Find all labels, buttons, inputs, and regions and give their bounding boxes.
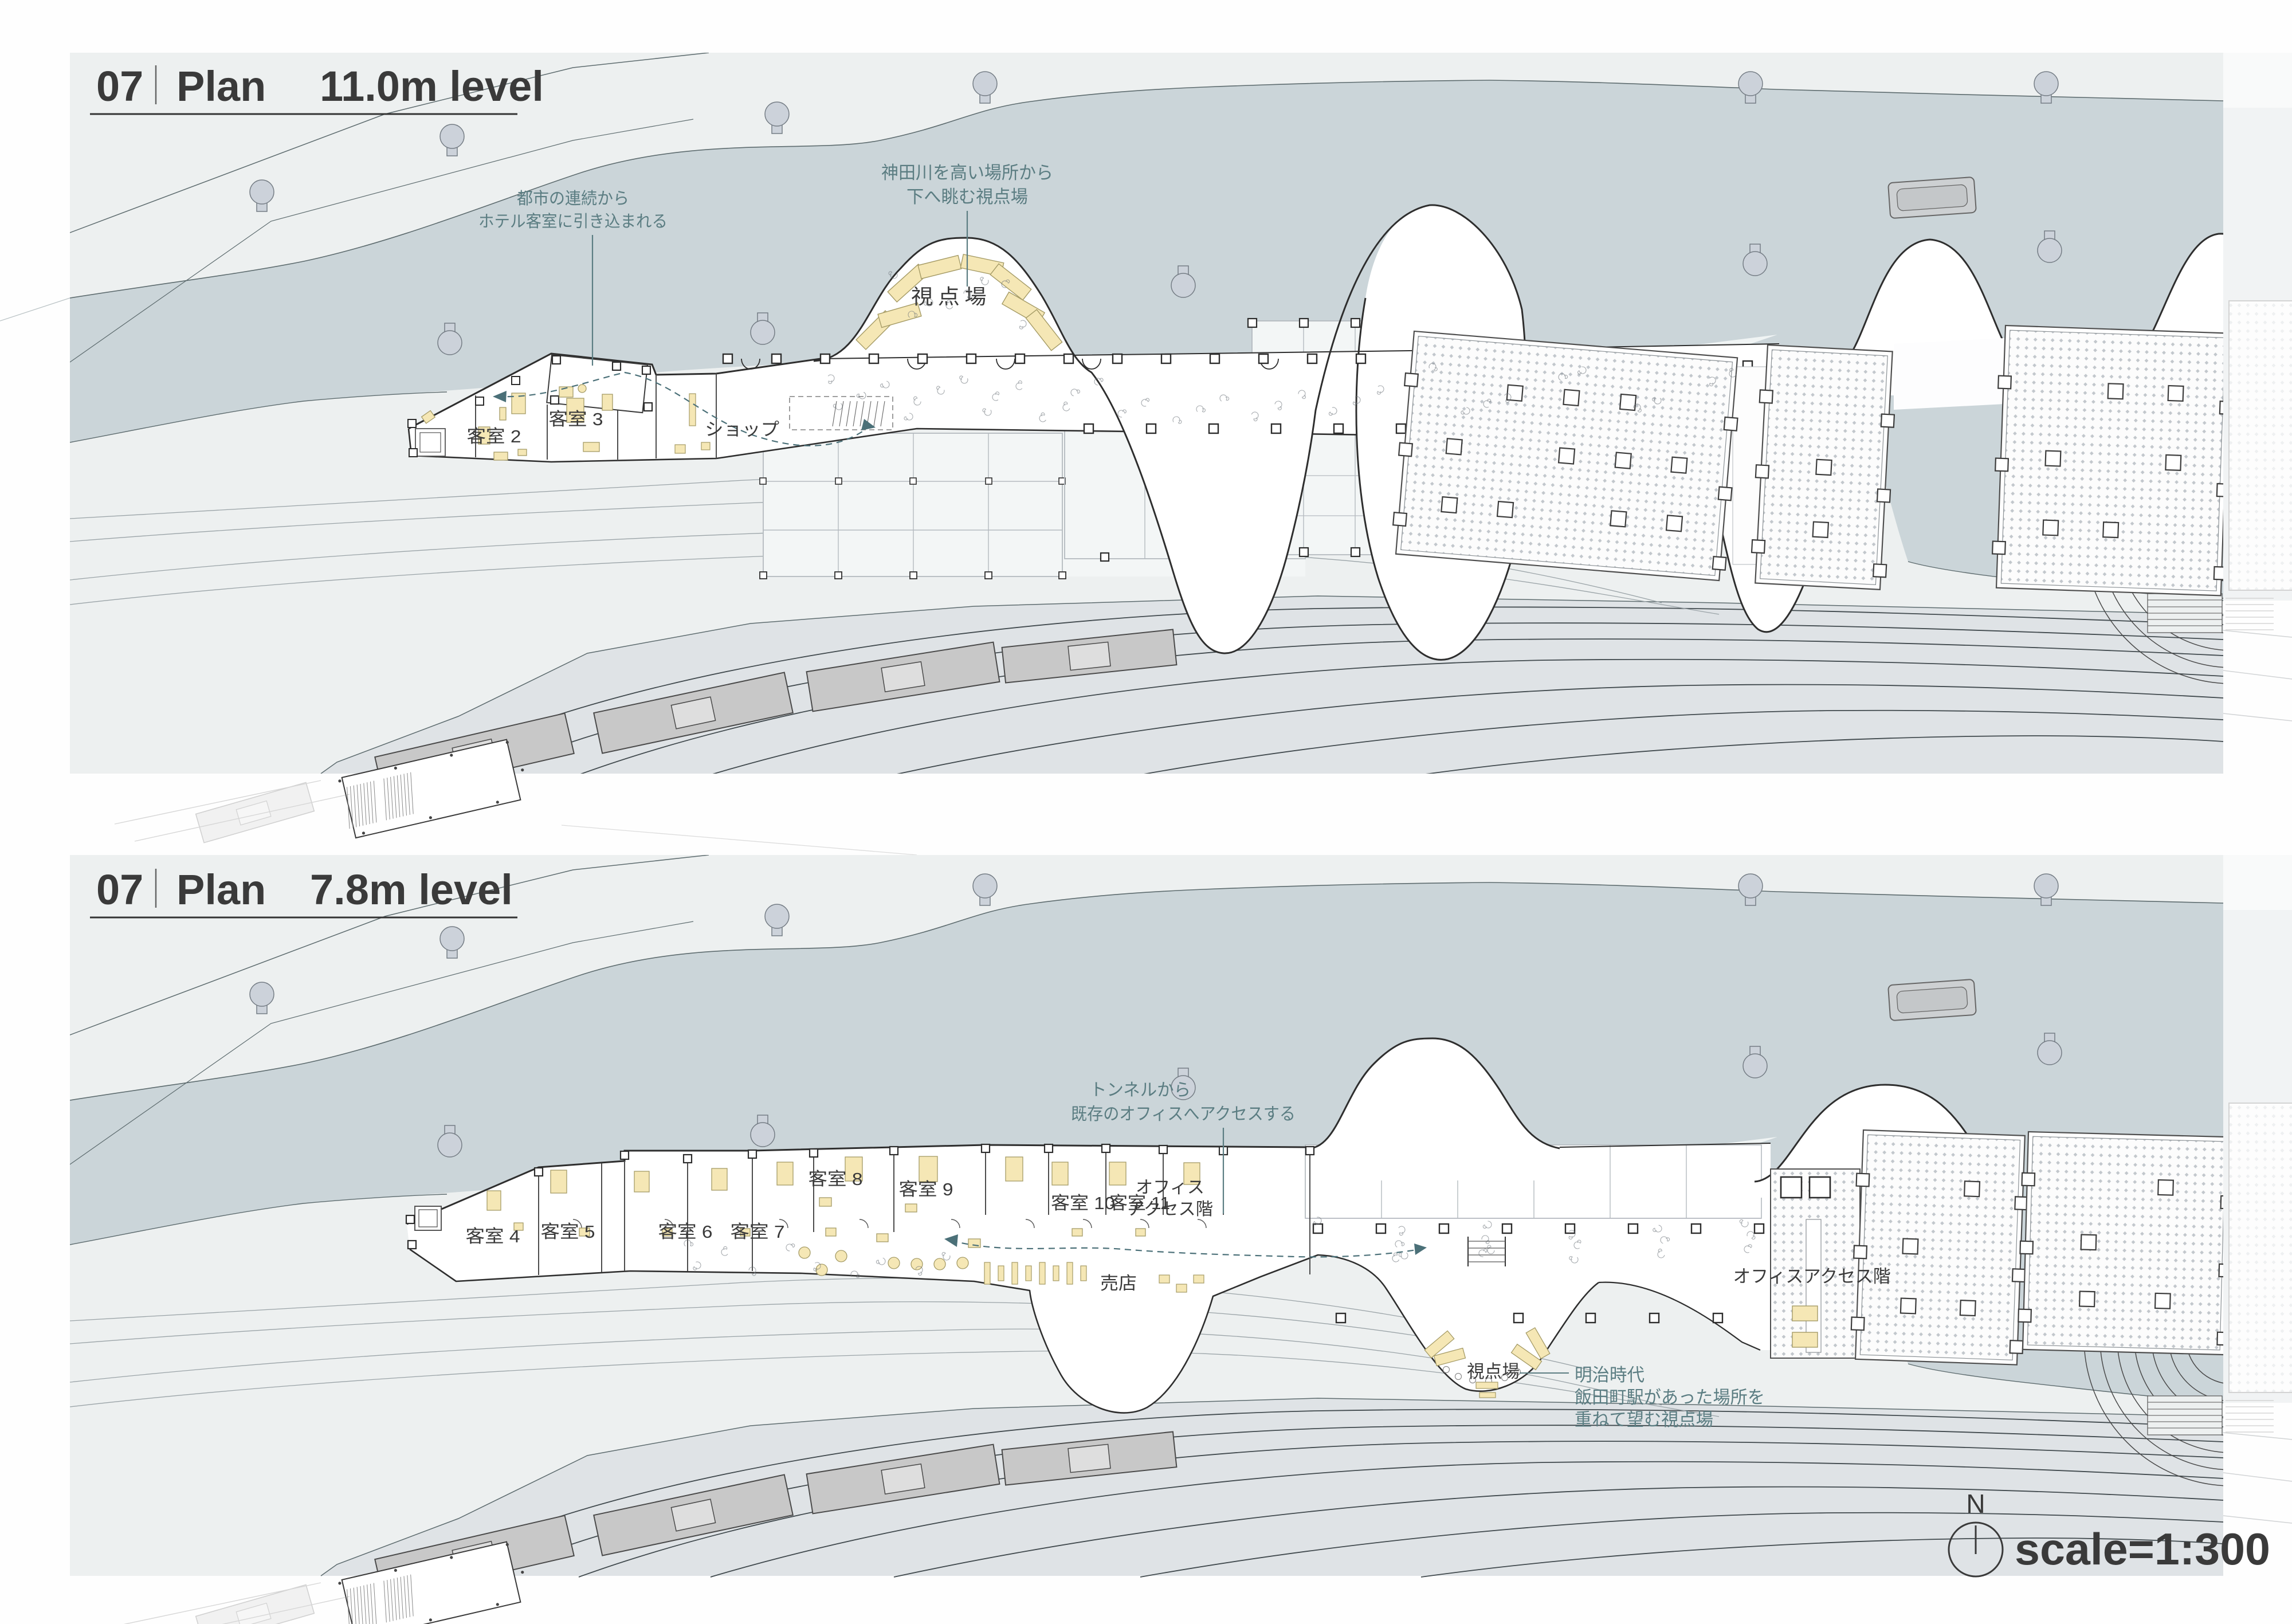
svg-text:飯田町駅があった場所を: 飯田町駅があった場所を [1575,1387,1765,1407]
svg-text:都市の連続から: 都市の連続から [517,189,629,208]
svg-text:07: 07 [96,62,143,110]
svg-text:客室 8: 客室 8 [809,1169,863,1189]
svg-text:神田川を高い場所から: 神田川を高い場所から [881,163,1053,183]
svg-text:客室 7: 客室 7 [731,1222,785,1242]
svg-text:アクセス階: アクセス階 [1127,1200,1213,1219]
svg-text:scale=1:300: scale=1:300 [2015,1524,2270,1574]
svg-text:客室 3: 客室 3 [549,409,603,429]
svg-text:ホテル客室に引き込まれる: ホテル客室に引き込まれる [478,212,668,231]
svg-text:Plan: Plan [176,62,266,110]
svg-text:客室 5: 客室 5 [541,1222,595,1242]
svg-text:客室 10: 客室 10 [1051,1193,1115,1213]
svg-text:客室 2: 客室 2 [467,426,521,446]
svg-text:明治時代: 明治時代 [1575,1365,1645,1385]
svg-text:重ねて望む視点場: 重ねて望む視点場 [1575,1410,1713,1430]
svg-text:N: N [1966,1489,1985,1519]
svg-text:Plan: Plan [176,866,266,913]
svg-text:客室 9: 客室 9 [899,1179,953,1199]
svg-text:11.0m level: 11.0m level [320,62,544,110]
svg-text:トンネルから: トンネルから [1090,1081,1191,1100]
svg-text:客室 6: 客室 6 [658,1222,713,1242]
svg-text:視点場: 視点場 [1467,1362,1520,1382]
svg-text:オフィス: オフィス [1136,1178,1204,1197]
svg-text:客室 4: 客室 4 [466,1226,520,1246]
svg-text:7.8m level: 7.8m level [310,866,513,913]
svg-text:既存のオフィスへアクセスする: 既存のオフィスへアクセスする [1071,1105,1296,1124]
svg-text:視点場: 視点場 [911,285,991,308]
svg-text:下へ眺む視点場: 下へ眺む視点場 [906,187,1028,207]
svg-text:売店: 売店 [1100,1273,1137,1293]
svg-text:07: 07 [96,866,143,913]
svg-text:オフィスアクセス階: オフィスアクセス階 [1733,1266,1891,1286]
svg-text:ショップ: ショップ [705,419,779,440]
